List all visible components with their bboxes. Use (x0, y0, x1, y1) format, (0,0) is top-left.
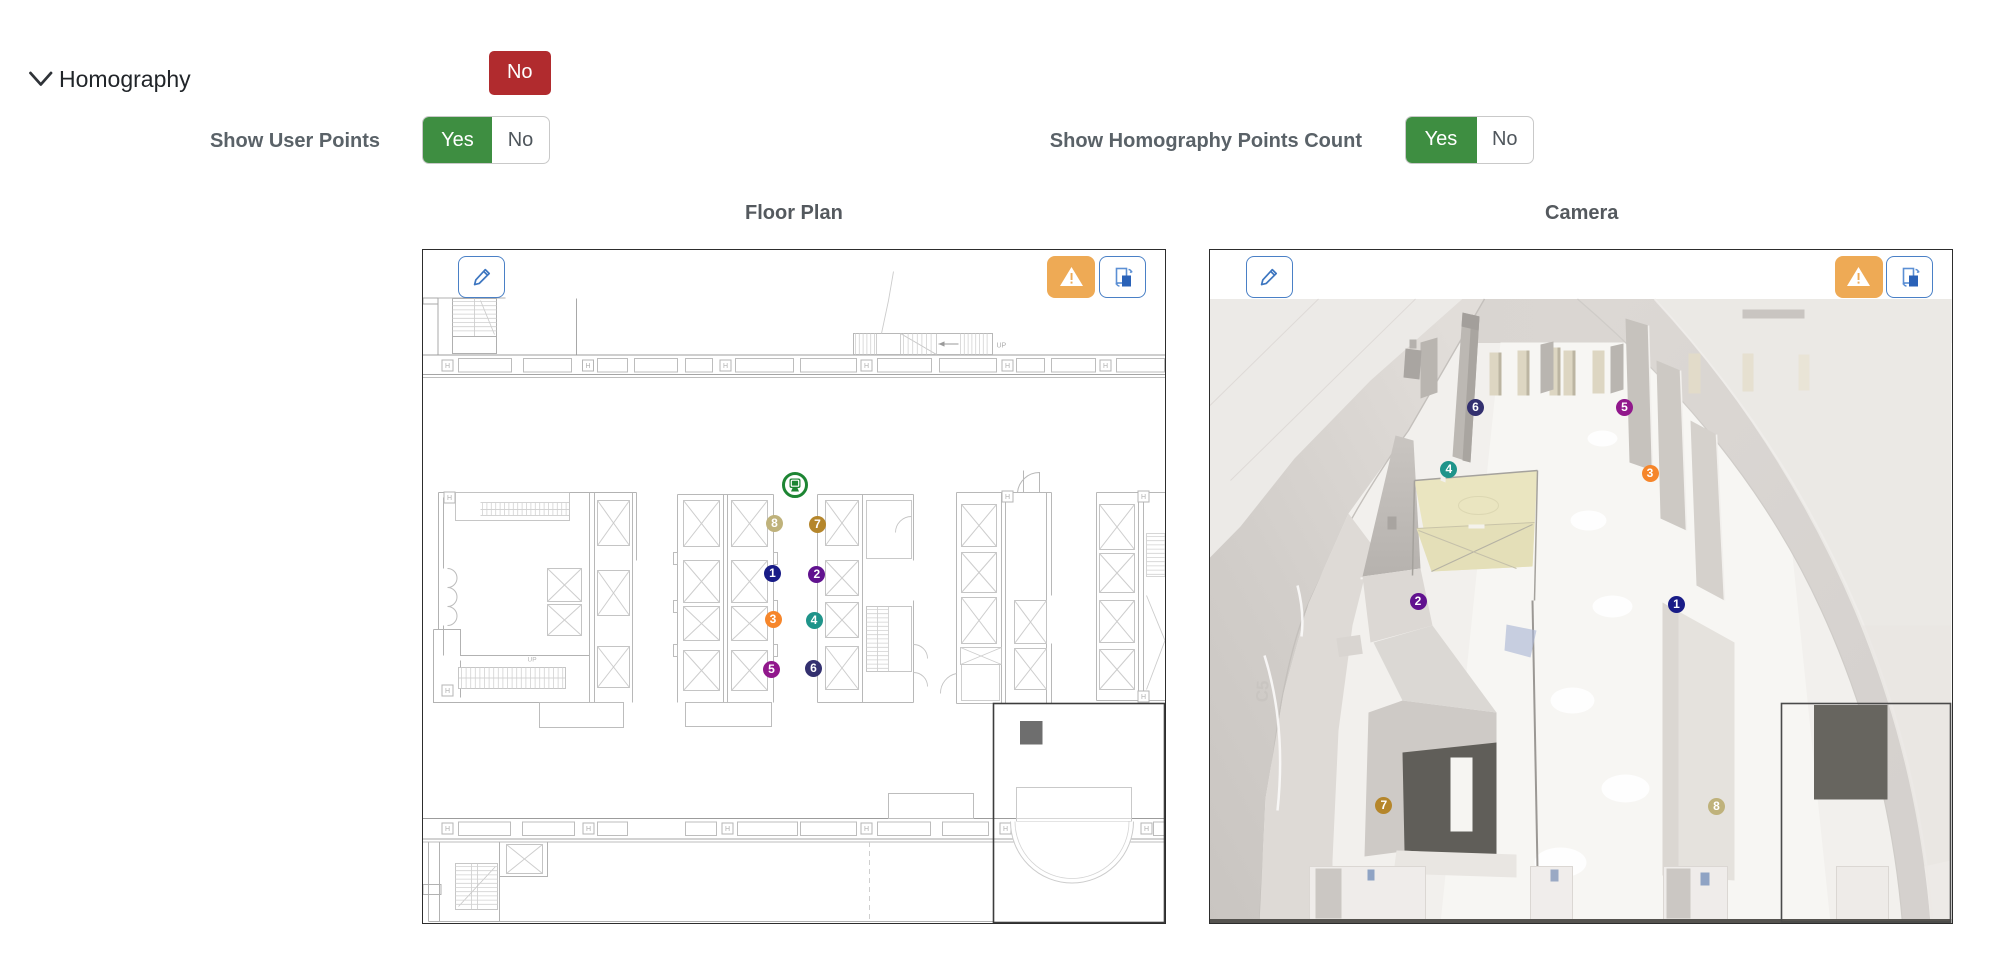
svg-text:H: H (1005, 363, 1010, 370)
svg-text:H: H (1103, 363, 1108, 370)
svg-text:H: H (585, 363, 590, 370)
svg-text:H: H (1144, 826, 1149, 833)
svg-text:H: H (445, 363, 450, 370)
svg-text:UP: UP (996, 343, 1006, 350)
svg-text:H: H (864, 826, 869, 833)
svg-text:H: H (725, 826, 730, 833)
svg-text:H: H (447, 495, 452, 502)
svg-text:H: H (586, 826, 591, 833)
svg-text:H: H (1003, 826, 1008, 833)
svg-text:UP: UP (527, 657, 536, 664)
svg-text:H: H (723, 363, 728, 370)
svg-text:H: H (864, 363, 869, 370)
svg-text:H: H (445, 688, 450, 695)
svg-text:H: H (445, 826, 450, 833)
svg-text:C5: C5 (1252, 680, 1272, 703)
svg-text:H: H (1005, 494, 1010, 501)
svg-text:H: H (1141, 694, 1146, 701)
svg-text:H: H (1141, 494, 1146, 501)
